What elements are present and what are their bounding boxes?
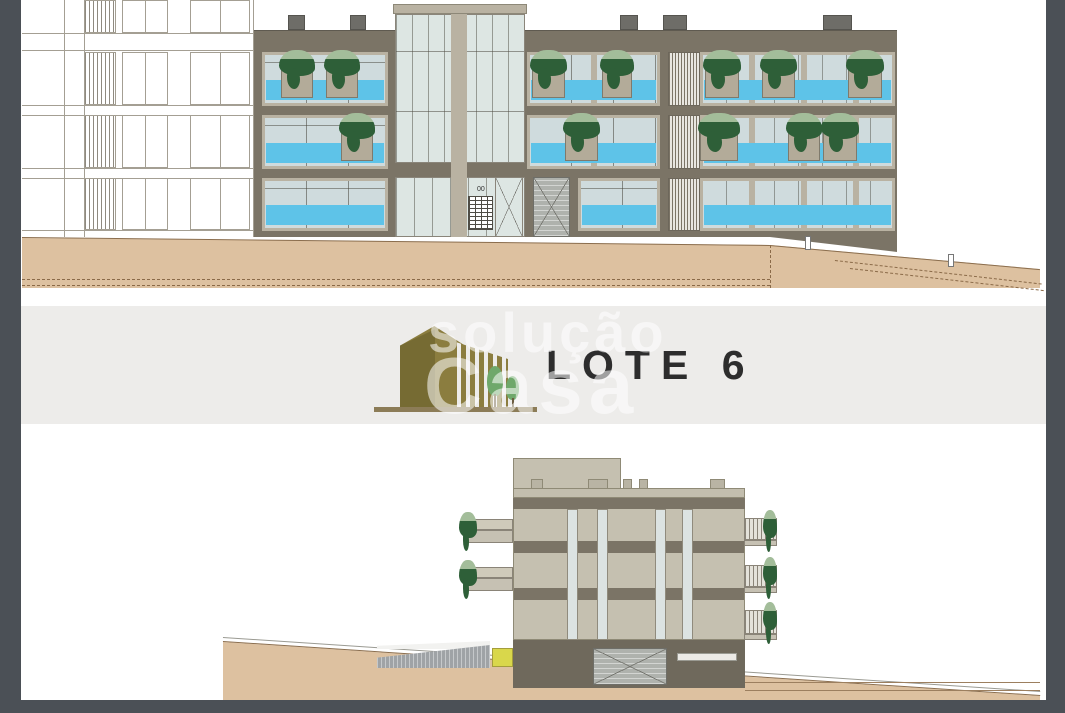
louver-panel	[84, 178, 116, 230]
wireframe-line	[22, 33, 254, 34]
plant	[600, 50, 634, 76]
brand-logo	[374, 315, 544, 415]
wireframe-line	[64, 0, 65, 237]
chimney	[288, 15, 305, 30]
spandrel-band	[514, 588, 744, 600]
viewer-stage: 00 LOTE 6 solução Casa	[0, 0, 1065, 713]
viewer-gutter-bottom	[0, 700, 1065, 713]
window	[700, 178, 895, 231]
louver-panel	[668, 178, 700, 231]
plant	[339, 113, 375, 139]
window	[190, 0, 250, 33]
plant	[459, 512, 477, 538]
roof-band	[513, 488, 745, 498]
window	[122, 0, 168, 33]
window-slot	[597, 509, 608, 640]
plant	[821, 113, 859, 139]
window	[262, 178, 388, 231]
plant	[459, 560, 477, 586]
plant	[563, 113, 600, 139]
setback-dashed-line	[22, 285, 770, 286]
setback-dashed-line	[22, 279, 770, 280]
garage-door	[593, 648, 667, 685]
tower-cornice	[393, 4, 527, 14]
foundation-line	[745, 682, 1040, 683]
wireframe-line	[22, 230, 254, 231]
balcony-slab	[744, 540, 777, 546]
foundation-line	[745, 690, 1040, 691]
louver-panel	[668, 52, 700, 106]
balcony-slab	[744, 587, 777, 593]
window-slot	[567, 509, 578, 640]
logo-building-shade	[400, 326, 435, 408]
plant	[763, 602, 777, 630]
viewer-gutter-left	[0, 0, 21, 713]
boundary-dashed-line	[770, 245, 771, 288]
chimney	[620, 15, 638, 30]
window	[122, 115, 168, 168]
parapet-band	[513, 498, 745, 509]
wireframe-line	[22, 105, 254, 106]
tree-icon	[487, 366, 503, 396]
plant	[763, 557, 777, 585]
tree-icon	[506, 376, 519, 400]
wireframe-line	[22, 50, 254, 51]
logo-baseline	[374, 407, 537, 412]
lot-title: LOTE 6	[546, 342, 756, 389]
plant	[760, 50, 797, 76]
window	[122, 52, 168, 105]
window	[122, 178, 168, 230]
wireframe-building	[22, 0, 254, 237]
louver-panel	[668, 115, 700, 169]
vent-slot	[677, 653, 737, 661]
plant	[846, 50, 884, 76]
chimney	[823, 15, 852, 30]
plant	[703, 50, 741, 76]
tree-trunk	[494, 394, 496, 407]
spandrel-band	[514, 541, 744, 553]
boundary-post	[805, 236, 811, 250]
plant	[279, 50, 315, 76]
boundary-post	[948, 254, 954, 267]
window-slot	[682, 509, 693, 640]
window	[578, 178, 660, 231]
tower-column	[451, 14, 467, 237]
viewer-gutter-right	[1046, 0, 1065, 713]
front-elevation: 00	[0, 0, 1065, 290]
louver-panel	[84, 115, 116, 168]
louver-panel	[84, 0, 116, 33]
window	[190, 52, 250, 105]
side-elevation	[0, 425, 1065, 700]
entrance-door	[533, 177, 570, 237]
side-facade	[513, 509, 745, 640]
chimney	[663, 15, 687, 30]
wireframe-line	[22, 168, 254, 169]
window	[190, 115, 250, 168]
chimney	[350, 15, 366, 30]
louver-panel	[84, 52, 116, 105]
plant	[698, 113, 740, 139]
balcony-slab	[744, 634, 777, 640]
plant	[324, 50, 360, 76]
stair-symbol	[468, 196, 493, 230]
window	[190, 178, 250, 230]
window-slot	[655, 509, 666, 640]
plant	[763, 510, 777, 538]
wall-section-cut	[492, 648, 513, 667]
plant	[786, 113, 822, 139]
plant	[530, 50, 567, 76]
stair-level-label: 00	[477, 186, 485, 193]
glazed-door	[495, 177, 523, 237]
